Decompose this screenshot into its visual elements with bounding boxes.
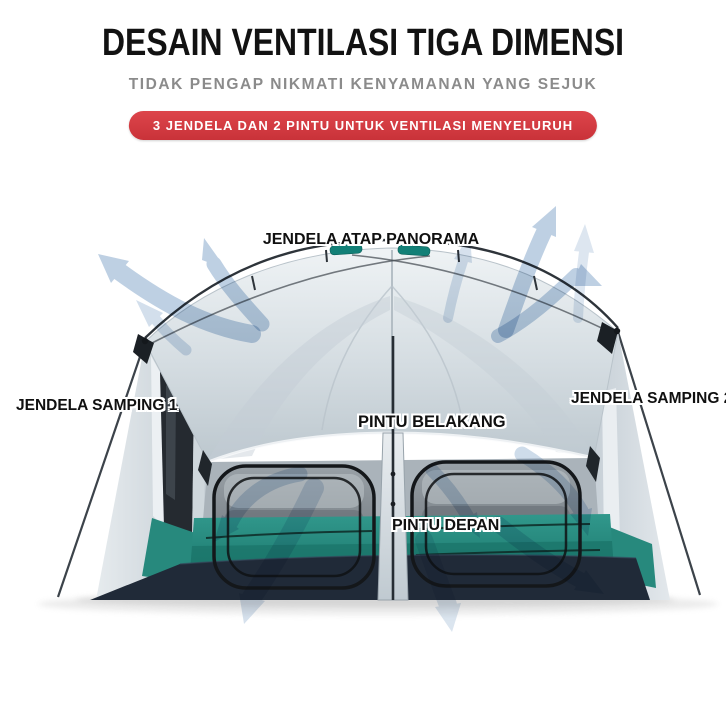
tent-illustration xyxy=(0,0,726,726)
label-side-window-1: JENDELA SAMPING 1 xyxy=(16,397,177,415)
label-roof-window: JENDELA ATAP PANORAMA xyxy=(8,231,726,249)
label-side-window-2: JENDELA SAMPING 2 xyxy=(571,390,726,408)
label-front-door: PINTU DEPAN xyxy=(392,517,499,535)
tent-ventilation-drawing xyxy=(0,0,726,726)
label-back-door: PINTU BELAKANG xyxy=(358,413,506,432)
product-ventilation-infographic: DESAIN VENTILASI TIGA DIMENSI TIDAK PENG… xyxy=(0,0,726,726)
